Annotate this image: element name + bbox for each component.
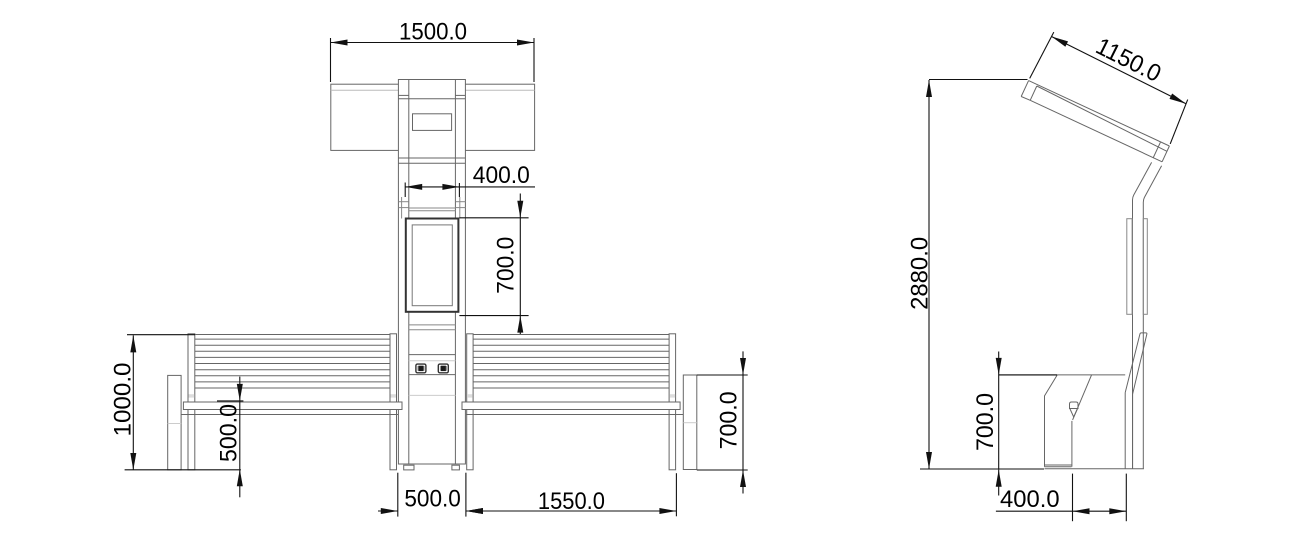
svg-text:400.0: 400.0 (1000, 486, 1060, 513)
svg-text:1500.0: 1500.0 (399, 19, 467, 46)
svg-text:2880.0: 2880.0 (907, 237, 934, 310)
svg-text:700.0: 700.0 (492, 237, 519, 294)
svg-text:500.0: 500.0 (216, 404, 243, 462)
svg-text:1000.0: 1000.0 (110, 363, 137, 437)
svg-text:500.0: 500.0 (404, 485, 461, 512)
svg-text:700.0: 700.0 (972, 393, 999, 451)
svg-text:1550.0: 1550.0 (538, 488, 605, 515)
svg-text:700.0: 700.0 (716, 391, 743, 449)
svg-text:400.0: 400.0 (473, 162, 530, 189)
